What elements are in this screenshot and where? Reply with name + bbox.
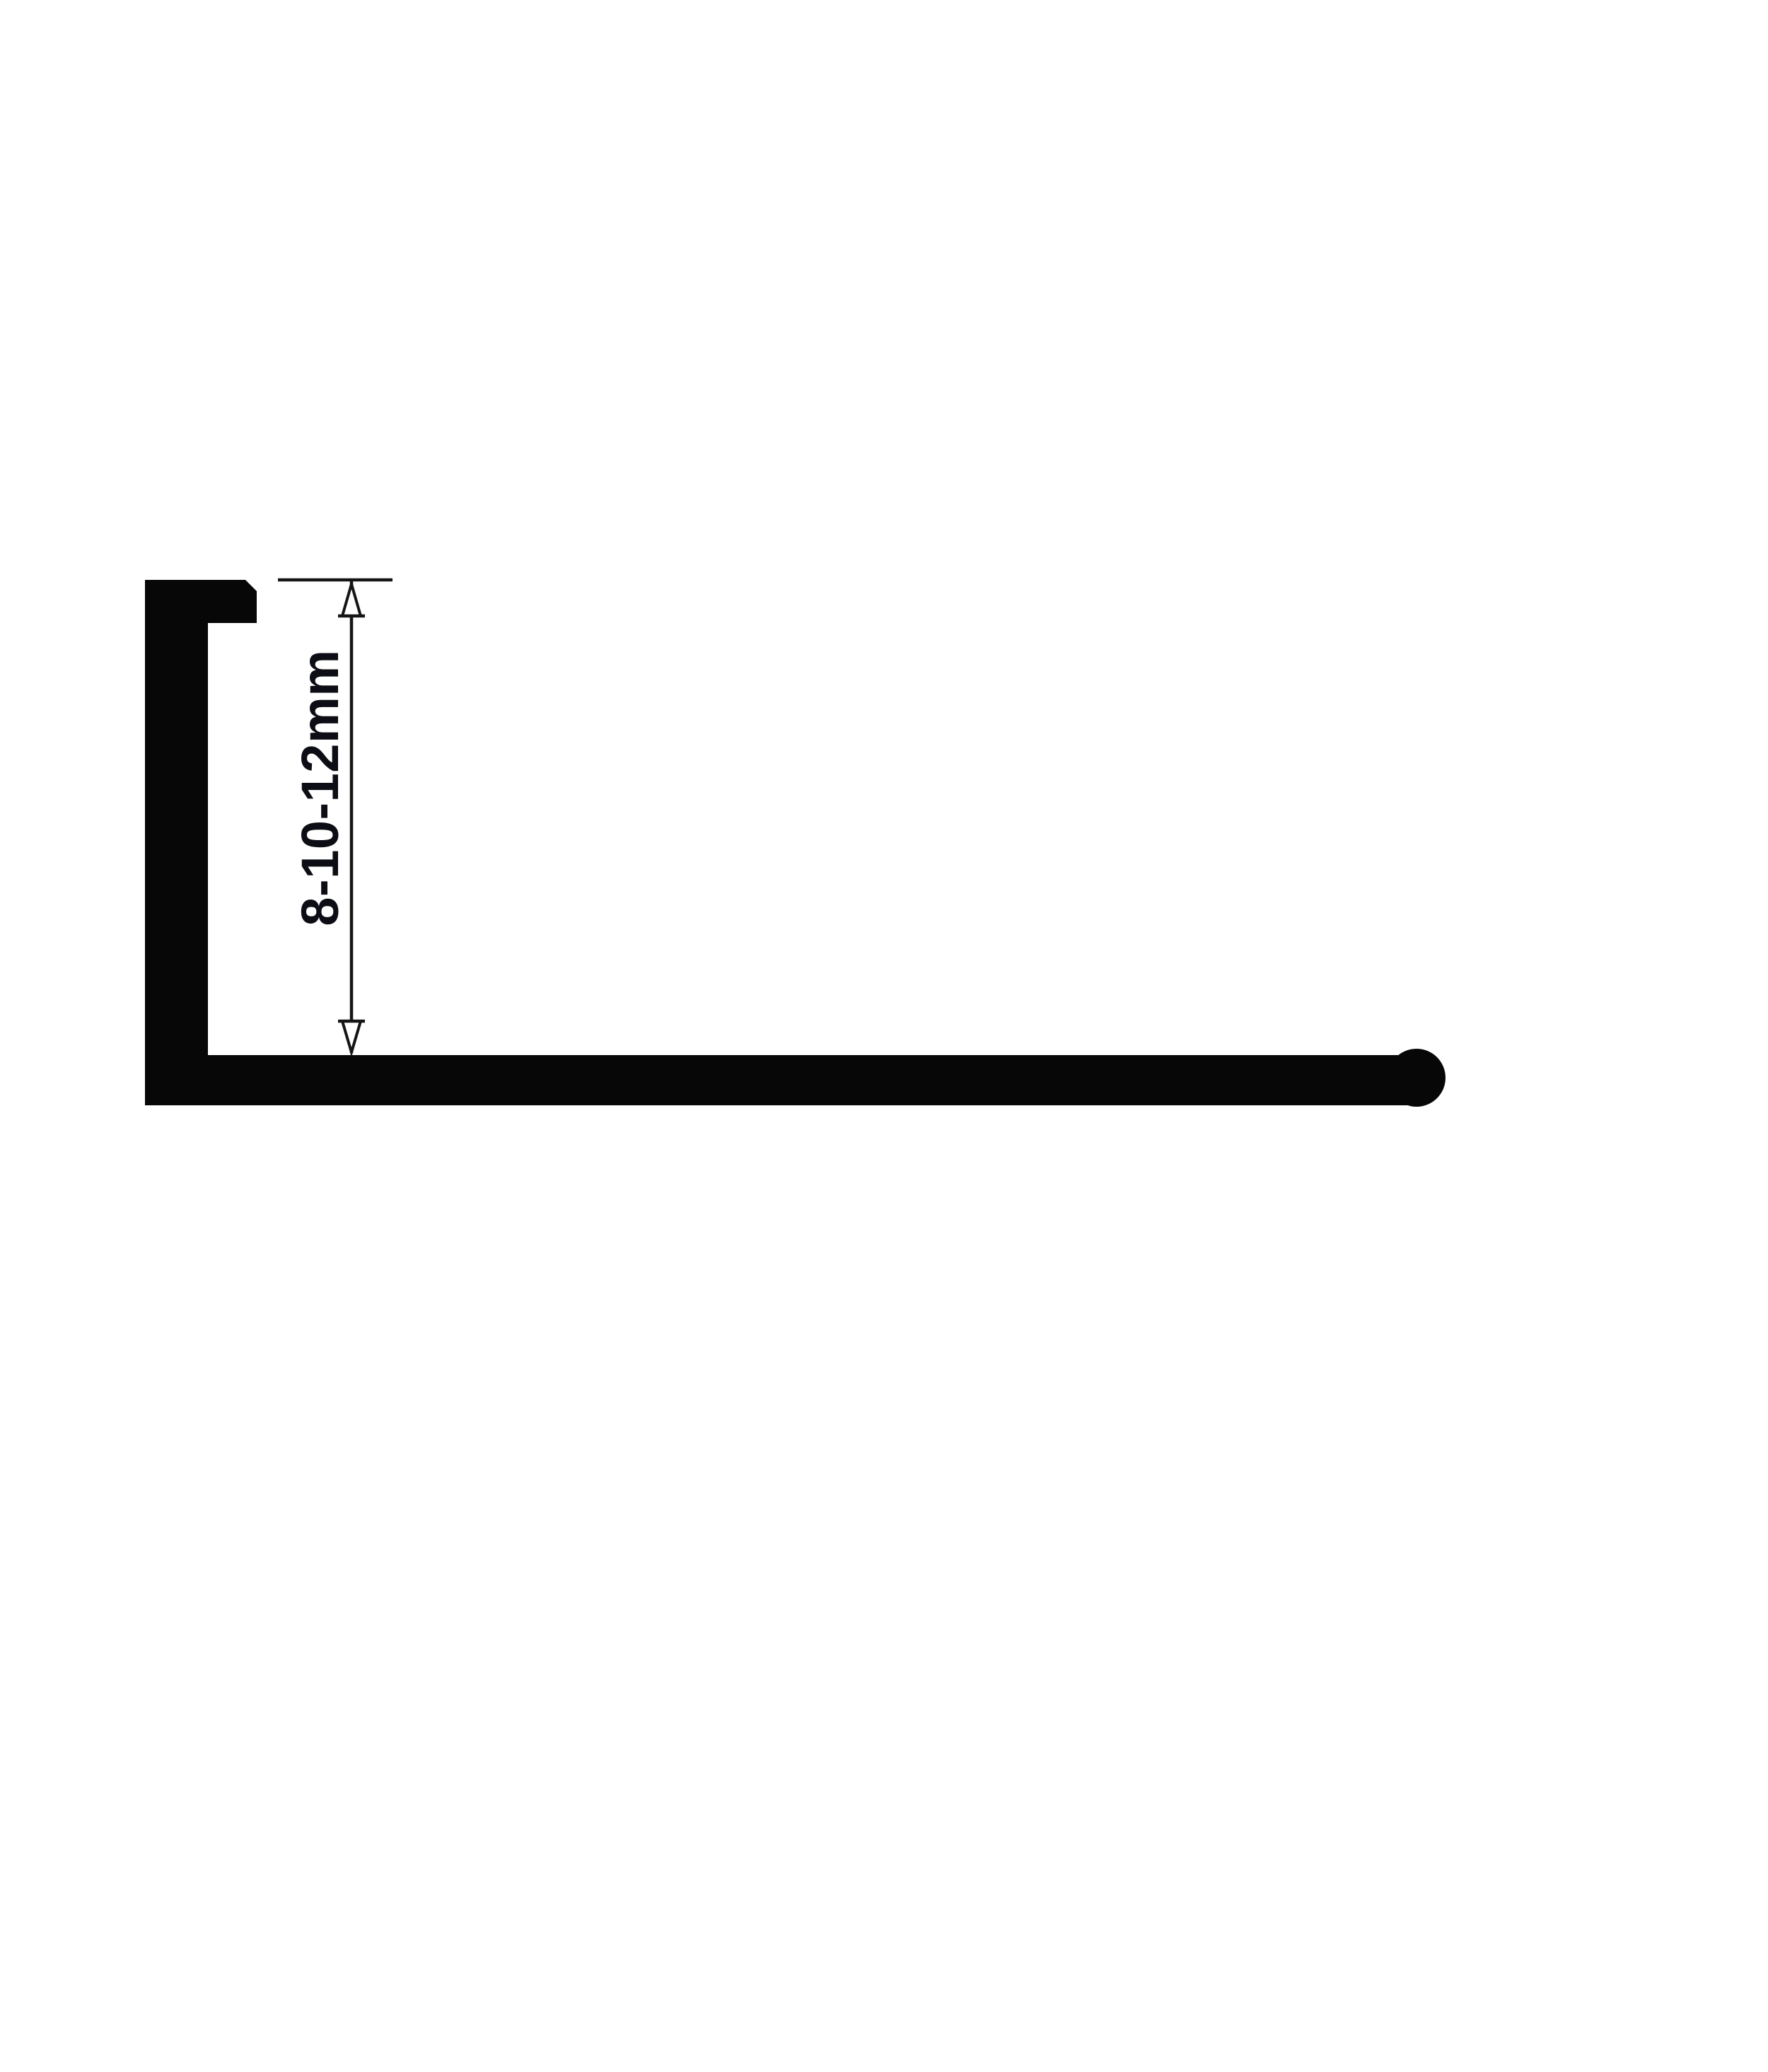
diagram-canvas: 8-10-12mm [0, 0, 1768, 2072]
l-profile-drawing [0, 0, 1768, 2072]
dimension-label: 8-10-12mm [293, 576, 347, 1000]
dimension-arrow-down-icon [342, 1021, 361, 1052]
profile-end-bulb-shape [1388, 1049, 1446, 1107]
